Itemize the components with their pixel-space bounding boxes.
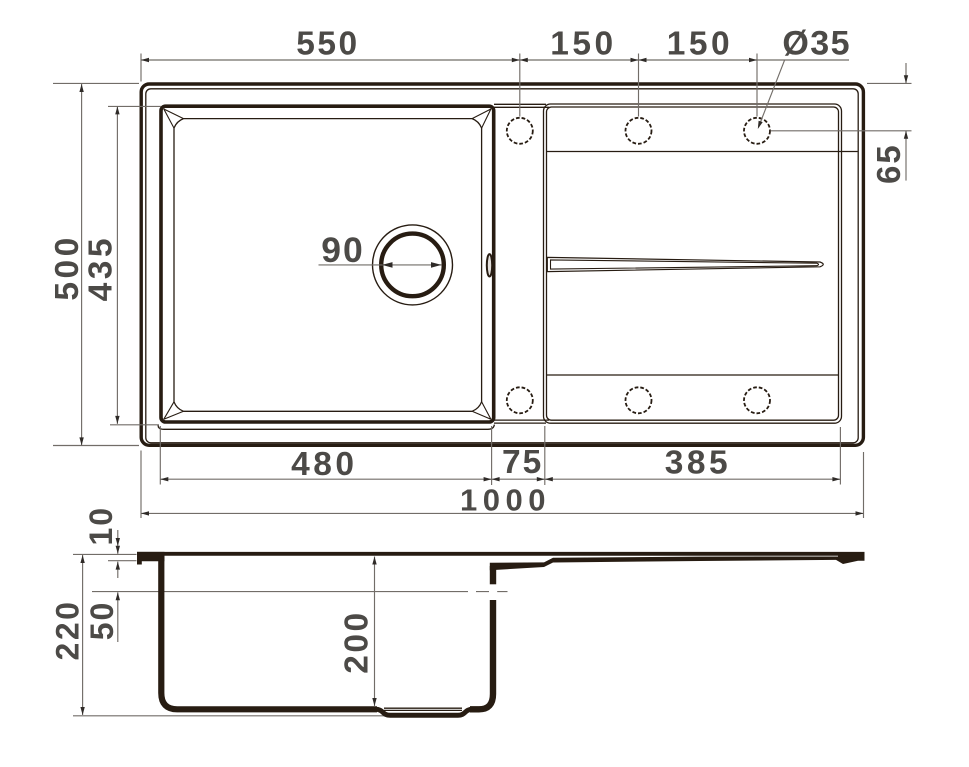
svg-text:Ø35: Ø35 [782,25,851,63]
svg-text:1000: 1000 [460,483,551,518]
svg-text:150: 150 [550,26,616,63]
svg-text:550: 550 [296,26,359,63]
svg-text:385: 385 [665,445,731,482]
svg-text:50: 50 [84,601,120,641]
svg-text:75: 75 [502,444,543,481]
svg-text:220: 220 [49,600,85,661]
svg-text:65: 65 [870,143,907,184]
svg-text:150: 150 [667,26,733,63]
svg-text:10: 10 [83,506,119,546]
svg-text:435: 435 [83,235,120,301]
svg-text:90: 90 [321,230,365,270]
svg-text:480: 480 [291,446,357,483]
svg-text:200: 200 [339,610,376,673]
svg-text:500: 500 [49,234,86,300]
